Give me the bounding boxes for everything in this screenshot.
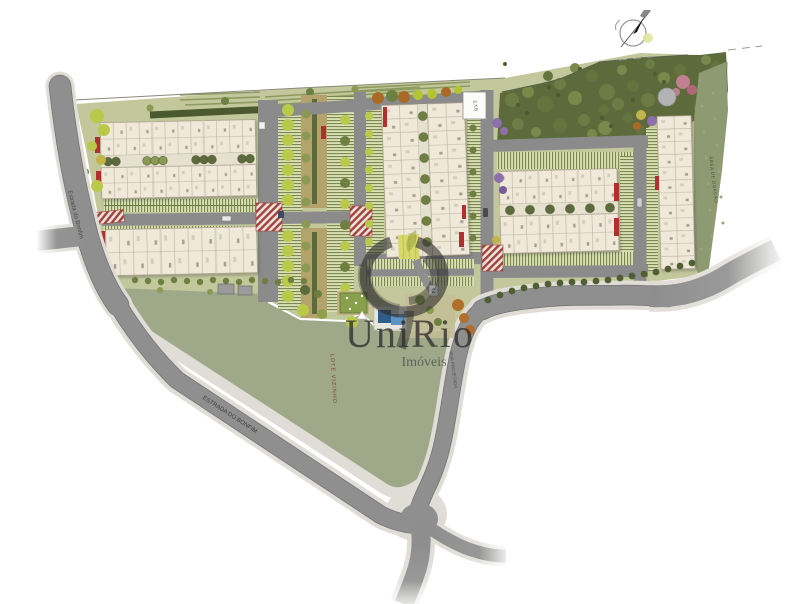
svg-text:UniRio: UniRio	[345, 311, 475, 356]
svg-text:Imóveis: Imóveis	[401, 355, 446, 370]
